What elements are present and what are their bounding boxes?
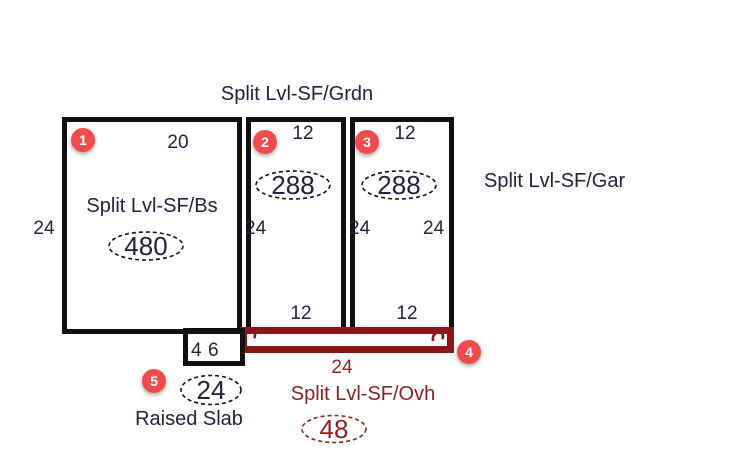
garden-left-bottom-dim: 12 (281, 304, 321, 323)
basement-area-value: 480 (106, 229, 186, 263)
slab-dim-a: 4 (191, 341, 202, 360)
garden-left-top-dim: 12 (283, 124, 323, 143)
basement-top-dim: 20 (158, 133, 198, 152)
area-overhang-outline[interactable] (240, 327, 454, 353)
annotation-marker-2[interactable]: 2 (253, 130, 277, 154)
slab-dim-b: 6 (208, 341, 219, 360)
annotation-marker-3[interactable]: 3 (355, 130, 379, 154)
dashed-line-mark-left (243, 329, 257, 347)
area-label-garden: Split Lvl-SF/Grdn (187, 83, 407, 105)
annotation-marker-4[interactable]: 4 (457, 340, 481, 364)
garden-right-bottom-dim: 12 (387, 304, 427, 323)
area-label-raised-slab: Raised Slab (123, 408, 255, 430)
basement-left-dim: 24 (28, 219, 60, 238)
garden-right-top-dim: 12 (385, 124, 425, 143)
garden-right-area-value: 288 (359, 168, 439, 202)
raised-slab-area-value: 24 (178, 373, 244, 407)
garden-right-right-dim: 24 (423, 219, 444, 238)
overhang-width-dim: 24 (322, 358, 362, 377)
sketch-canvas: Split Lvl-SF/Grdn 4 6 20 24 Split Lvl-SF… (0, 0, 735, 472)
garden-left-area-value: 288 (253, 168, 333, 202)
annotation-marker-1[interactable]: 1 (71, 128, 95, 152)
overhang-area-value: 48 (299, 413, 369, 445)
garden-right-left-dim: 24 (349, 219, 370, 238)
area-label-garage: Split Lvl-SF/Gar (484, 170, 666, 192)
dashed-line-mark-right (431, 330, 445, 348)
garden-left-left-dim: 24 (245, 219, 266, 238)
area-label-overhang: Split Lvl-SF/Ovh (263, 383, 463, 405)
area-label-basement: Split Lvl-SF/Bs (66, 195, 238, 217)
annotation-marker-5[interactable]: 5 (142, 369, 166, 393)
